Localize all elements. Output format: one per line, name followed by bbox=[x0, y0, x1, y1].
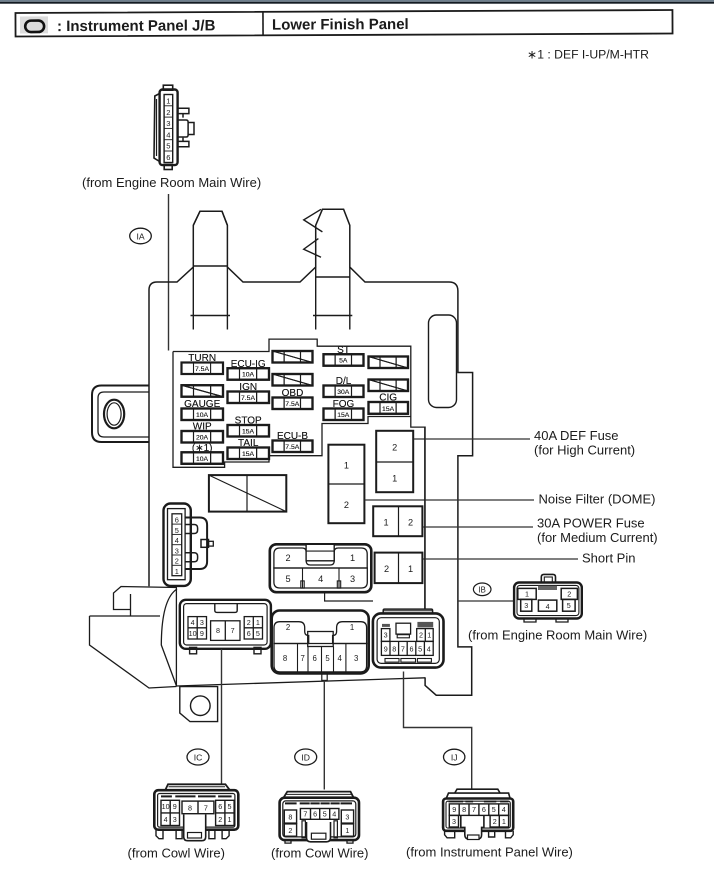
svg-text:7: 7 bbox=[401, 645, 405, 654]
svg-text:5: 5 bbox=[256, 629, 260, 638]
svg-text:7: 7 bbox=[472, 805, 476, 814]
svg-text:6: 6 bbox=[313, 654, 317, 663]
svg-text:CIG: CIG bbox=[379, 393, 397, 404]
svg-text:3: 3 bbox=[166, 119, 170, 128]
svg-text:5A: 5A bbox=[339, 358, 348, 365]
svg-text:IA: IA bbox=[136, 231, 144, 241]
svg-text:2: 2 bbox=[286, 623, 290, 632]
svg-text:6: 6 bbox=[313, 810, 317, 819]
svg-text:IC: IC bbox=[194, 752, 203, 762]
svg-text:4: 4 bbox=[166, 130, 170, 139]
svg-text:20A: 20A bbox=[196, 435, 209, 442]
svg-text:7.5A: 7.5A bbox=[195, 366, 209, 373]
svg-text:5: 5 bbox=[567, 601, 571, 610]
svg-text:5: 5 bbox=[325, 654, 330, 663]
svg-text:9: 9 bbox=[384, 645, 388, 654]
svg-text:ECU-IG: ECU-IG bbox=[231, 359, 266, 370]
svg-text:(for Medium Current): (for Medium Current) bbox=[537, 530, 658, 545]
svg-text:1: 1 bbox=[350, 553, 355, 563]
svg-text:5: 5 bbox=[285, 574, 290, 584]
svg-text:5: 5 bbox=[418, 645, 422, 654]
svg-text:6: 6 bbox=[482, 805, 486, 814]
svg-text:2: 2 bbox=[567, 589, 571, 598]
svg-text:2: 2 bbox=[493, 817, 497, 826]
svg-text:5: 5 bbox=[228, 802, 232, 811]
svg-text:3: 3 bbox=[175, 546, 179, 555]
svg-text:(from Instrument Panel Wire): (from Instrument Panel Wire) bbox=[406, 845, 573, 860]
svg-text:ECU-B: ECU-B bbox=[277, 431, 308, 442]
svg-text:6: 6 bbox=[218, 802, 222, 811]
svg-text:15A: 15A bbox=[382, 406, 395, 413]
svg-text:4: 4 bbox=[338, 654, 343, 663]
svg-text:10: 10 bbox=[162, 802, 170, 811]
svg-text:7.5A: 7.5A bbox=[241, 395, 255, 402]
svg-text:ID: ID bbox=[301, 752, 310, 762]
svg-text:1: 1 bbox=[175, 567, 179, 576]
svg-text:1: 1 bbox=[345, 826, 349, 835]
svg-text:6: 6 bbox=[175, 516, 179, 525]
svg-text:15A: 15A bbox=[242, 429, 255, 436]
svg-text:6: 6 bbox=[410, 645, 414, 654]
svg-text:4: 4 bbox=[427, 645, 431, 654]
svg-text:40A DEF Fuse: 40A DEF Fuse bbox=[534, 428, 619, 443]
svg-text:3: 3 bbox=[524, 601, 528, 610]
svg-text:8: 8 bbox=[392, 645, 396, 654]
svg-text:STOP: STOP bbox=[235, 416, 262, 427]
svg-text:30A: 30A bbox=[337, 389, 350, 396]
svg-text:(from Engine Room Main Wire): (from Engine Room Main Wire) bbox=[82, 175, 261, 190]
svg-text:4: 4 bbox=[191, 618, 195, 627]
svg-text:ST: ST bbox=[337, 345, 350, 356]
svg-text:3: 3 bbox=[354, 654, 358, 663]
svg-text:4: 4 bbox=[332, 810, 336, 819]
svg-text:IB: IB bbox=[479, 585, 486, 594]
svg-text:2: 2 bbox=[175, 557, 179, 566]
svg-text:(from Engine Room Main Wire): (from Engine Room Main Wire) bbox=[468, 628, 647, 643]
svg-text:1: 1 bbox=[350, 623, 354, 632]
svg-text:4: 4 bbox=[164, 815, 168, 824]
svg-text:8: 8 bbox=[288, 812, 292, 821]
svg-text:10: 10 bbox=[189, 629, 197, 638]
svg-text:GAUGE: GAUGE bbox=[184, 399, 220, 410]
svg-text:6: 6 bbox=[166, 153, 170, 162]
svg-text:(∗1): (∗1) bbox=[192, 443, 213, 454]
svg-text:30A POWER Fuse: 30A POWER Fuse bbox=[537, 516, 645, 531]
svg-text:4: 4 bbox=[175, 536, 179, 545]
svg-text:8: 8 bbox=[188, 803, 192, 812]
svg-text:2: 2 bbox=[419, 631, 423, 640]
svg-text:2: 2 bbox=[166, 108, 170, 117]
svg-text:2: 2 bbox=[408, 518, 413, 528]
svg-text:2: 2 bbox=[344, 500, 349, 510]
svg-text:8: 8 bbox=[216, 626, 220, 635]
svg-text:5: 5 bbox=[166, 142, 170, 151]
svg-text:OBD: OBD bbox=[282, 388, 304, 399]
svg-text:FOG: FOG bbox=[333, 399, 355, 410]
svg-text:: Instrument Panel J/B: : Instrument Panel J/B bbox=[57, 17, 216, 35]
svg-text:2: 2 bbox=[247, 618, 251, 627]
svg-text:(from Cowl Wire): (from Cowl Wire) bbox=[271, 846, 369, 861]
svg-text:TAIL: TAIL bbox=[238, 438, 259, 449]
svg-text:4: 4 bbox=[546, 602, 550, 611]
svg-text:∗1 : DEF I-UP/M-HTR: ∗1 : DEF I-UP/M-HTR bbox=[527, 48, 649, 62]
svg-text:1: 1 bbox=[166, 97, 170, 106]
svg-text:3: 3 bbox=[200, 618, 204, 627]
svg-text:7: 7 bbox=[204, 803, 208, 812]
svg-text:D/L: D/L bbox=[336, 376, 352, 387]
svg-text:6: 6 bbox=[247, 629, 251, 638]
svg-text:TURN: TURN bbox=[188, 353, 216, 364]
svg-text:1: 1 bbox=[228, 815, 232, 824]
svg-text:9: 9 bbox=[173, 802, 177, 811]
svg-text:2: 2 bbox=[285, 553, 290, 563]
svg-text:1: 1 bbox=[344, 461, 349, 471]
svg-text:Noise Filter (DOME): Noise Filter (DOME) bbox=[539, 492, 656, 507]
svg-text:9: 9 bbox=[200, 629, 204, 638]
svg-text:1: 1 bbox=[525, 589, 529, 598]
svg-text:5: 5 bbox=[492, 805, 496, 814]
svg-text:7: 7 bbox=[231, 626, 235, 635]
svg-text:7.5A: 7.5A bbox=[285, 444, 299, 451]
svg-text:4: 4 bbox=[502, 805, 506, 814]
svg-text:1: 1 bbox=[383, 518, 388, 528]
svg-text:10A: 10A bbox=[196, 412, 209, 419]
svg-text:15A: 15A bbox=[242, 451, 255, 458]
svg-text:7: 7 bbox=[303, 810, 307, 819]
svg-text:(from Cowl Wire): (from Cowl Wire) bbox=[128, 846, 226, 861]
svg-text:7: 7 bbox=[301, 654, 305, 663]
svg-text:1: 1 bbox=[502, 817, 506, 826]
svg-text:2: 2 bbox=[392, 443, 397, 453]
svg-text:3: 3 bbox=[350, 574, 355, 584]
svg-text:1: 1 bbox=[256, 618, 260, 627]
svg-text:9: 9 bbox=[452, 805, 456, 814]
svg-text:3: 3 bbox=[452, 817, 456, 826]
svg-text:3: 3 bbox=[345, 812, 349, 821]
svg-text:1: 1 bbox=[392, 474, 397, 484]
svg-text:1: 1 bbox=[427, 631, 431, 640]
svg-text:10A: 10A bbox=[242, 372, 255, 379]
svg-text:Lower Finish Panel: Lower Finish Panel bbox=[272, 16, 409, 34]
svg-text:1: 1 bbox=[408, 564, 413, 574]
svg-text:8: 8 bbox=[462, 805, 466, 814]
svg-text:3: 3 bbox=[173, 815, 177, 824]
svg-text:2: 2 bbox=[288, 826, 292, 835]
svg-text:5: 5 bbox=[175, 526, 179, 535]
svg-text:2: 2 bbox=[218, 815, 222, 824]
svg-text:7.5A: 7.5A bbox=[285, 401, 299, 408]
svg-text:IJ: IJ bbox=[451, 752, 458, 762]
svg-text:10A: 10A bbox=[196, 456, 209, 463]
svg-text:WIP: WIP bbox=[193, 422, 212, 433]
svg-text:Short Pin: Short Pin bbox=[582, 551, 635, 566]
svg-text:3: 3 bbox=[384, 631, 388, 640]
svg-text:2: 2 bbox=[384, 564, 389, 574]
svg-text:8: 8 bbox=[283, 654, 287, 663]
svg-text:4: 4 bbox=[318, 574, 323, 584]
svg-text:(for High Current): (for High Current) bbox=[534, 443, 635, 458]
svg-text:15A: 15A bbox=[337, 412, 350, 419]
svg-text:IGN: IGN bbox=[239, 382, 257, 393]
svg-text:5: 5 bbox=[323, 810, 327, 819]
